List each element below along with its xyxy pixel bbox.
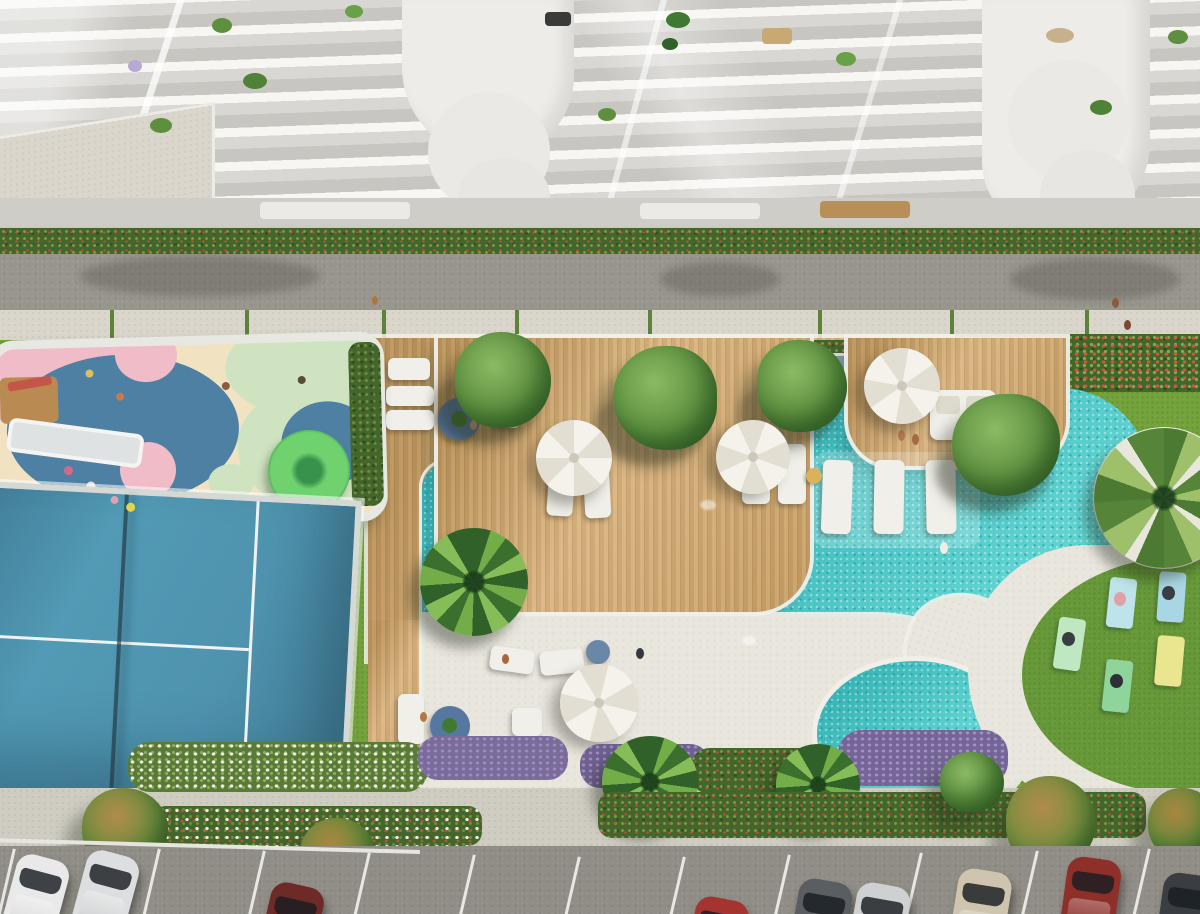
terrace-plant xyxy=(243,73,267,89)
stone-armchair xyxy=(512,708,542,736)
hedge-divider xyxy=(348,342,384,507)
yoga-person xyxy=(1110,674,1123,688)
court-center-line xyxy=(0,634,249,652)
canopy xyxy=(820,201,910,218)
canopy xyxy=(640,203,760,219)
seated-person xyxy=(420,712,427,722)
padel-player xyxy=(110,496,118,504)
terrace-furniture xyxy=(762,28,792,44)
child xyxy=(222,382,230,390)
seated-person xyxy=(502,654,509,664)
padel-player xyxy=(126,503,135,512)
terrace-furniture xyxy=(545,12,571,26)
sunbather xyxy=(912,434,919,445)
tree-shadow xyxy=(80,256,320,296)
terrace-furniture xyxy=(1046,28,1074,43)
pedestrian xyxy=(1112,298,1119,308)
tree-shadow xyxy=(1010,258,1180,300)
yoga-person xyxy=(1114,592,1126,606)
deck-sofa xyxy=(388,358,430,380)
terrace-plant xyxy=(212,18,232,33)
terrace-plant xyxy=(598,108,616,121)
aerial-resort-render xyxy=(0,0,1200,914)
sunbather xyxy=(898,430,905,441)
terrace-flowers xyxy=(128,60,142,72)
pool-splash xyxy=(700,500,716,510)
daybed-cushion xyxy=(936,396,960,414)
table-plant xyxy=(442,718,457,733)
terrace-plant xyxy=(666,12,690,28)
yoga-person xyxy=(1062,632,1075,646)
in-pool-lounger xyxy=(873,460,904,535)
terrace-plant xyxy=(345,5,363,18)
parking-lot xyxy=(0,846,1200,914)
deck-lounger xyxy=(386,410,434,430)
terrace-plant xyxy=(662,38,678,50)
in-pool-lounger xyxy=(821,459,854,534)
white-flower-bed xyxy=(128,742,428,792)
fire-table xyxy=(586,640,610,664)
yoga-person xyxy=(1162,586,1175,600)
yoga-mat xyxy=(1154,635,1185,687)
ground-floor-strip xyxy=(0,198,1200,230)
canopy xyxy=(260,202,410,219)
perimeter-hedge xyxy=(0,228,1200,254)
seated-person xyxy=(636,648,644,659)
umbrella xyxy=(536,420,612,496)
pool-splash xyxy=(742,636,756,645)
deck-lounger xyxy=(386,386,434,406)
tree-shadow xyxy=(660,262,780,296)
terrace-plant xyxy=(1168,30,1188,44)
terrace-plant xyxy=(150,118,172,133)
deck-tree xyxy=(757,340,847,432)
pedestrian xyxy=(372,296,378,305)
deck-tree xyxy=(455,332,551,428)
terrace-plant xyxy=(836,52,856,66)
side-table xyxy=(806,468,822,484)
terrace-plant xyxy=(1090,100,1112,115)
deck-tree xyxy=(613,346,717,450)
pedestrian xyxy=(1124,320,1131,330)
street-tree xyxy=(940,752,1004,812)
lavender-bed xyxy=(418,736,568,780)
pool-edge-walker xyxy=(940,542,948,554)
palm-island xyxy=(420,528,528,636)
